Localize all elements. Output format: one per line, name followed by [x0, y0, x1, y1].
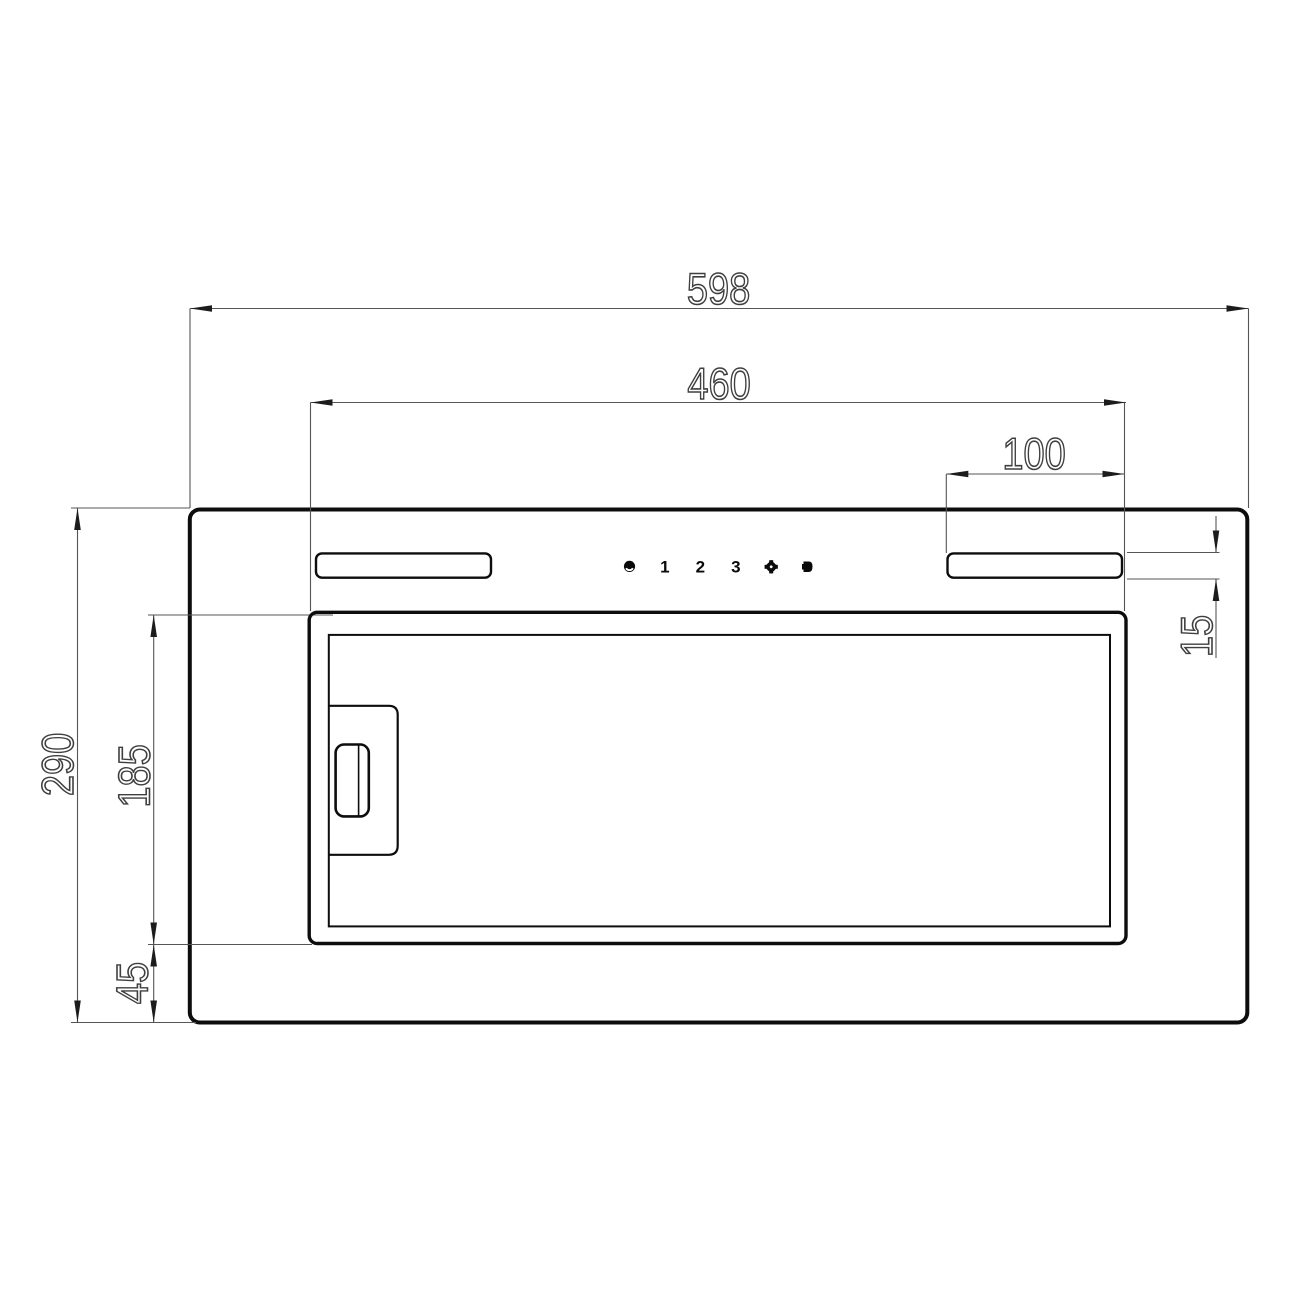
svg-text:185: 185 — [108, 744, 159, 807]
svg-text:598: 598 — [687, 263, 750, 314]
svg-text:100: 100 — [1002, 428, 1065, 479]
svg-text:1: 1 — [660, 557, 669, 576]
svg-text:45: 45 — [106, 962, 157, 1004]
svg-text:15: 15 — [1171, 615, 1222, 657]
svg-text:460: 460 — [687, 358, 750, 409]
svg-text:3: 3 — [731, 557, 740, 576]
svg-text:290: 290 — [32, 733, 83, 796]
svg-text:2: 2 — [696, 557, 705, 576]
